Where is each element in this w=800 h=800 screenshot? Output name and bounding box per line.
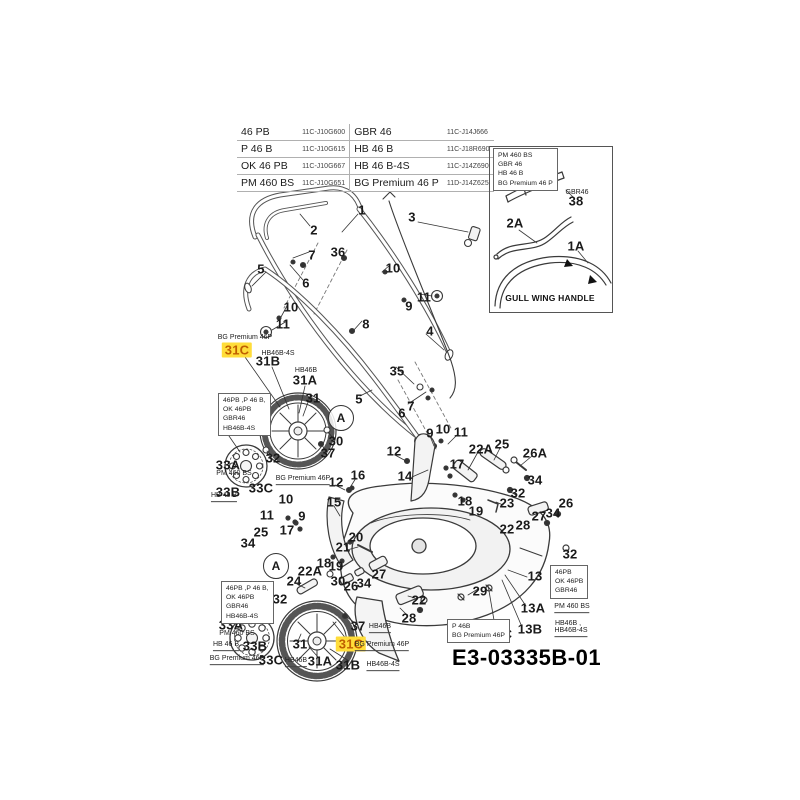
part-callout: 37 [321, 447, 336, 460]
model-applicability-note: HB46B-4S [554, 627, 587, 637]
part-callout: 13 [528, 570, 543, 583]
part-callout: 13A [521, 602, 545, 615]
view-ref-callout: A [328, 405, 354, 431]
part-callout: 1A [567, 240, 584, 253]
part-callout: 22A [469, 443, 493, 456]
part-callout: 32 [266, 452, 281, 465]
part-callout: 12 [329, 476, 344, 489]
part-callout: 7 [308, 249, 315, 262]
model-applicability-note: PM 460 BS [219, 630, 254, 638]
part-callout: 28 [516, 519, 531, 532]
part-callout: 11 [276, 318, 290, 331]
part-callout: 33B [243, 640, 267, 653]
part-callout-highlighted: 31C [222, 343, 252, 358]
part-callout: 35 [390, 365, 405, 378]
part-callout: 9 [298, 510, 305, 523]
part-callout: 4 [426, 325, 433, 338]
part-callout: 27 [532, 510, 547, 523]
part-callout: 22 [412, 594, 427, 607]
part-callout: 19 [329, 560, 344, 573]
model-applicability-note: BG Premium 46P [210, 655, 264, 665]
part-callout: 6 [302, 277, 309, 290]
part-callout: 21 [336, 541, 351, 554]
callout-layer: 123367561011981011435765910111222A2526A1… [0, 0, 800, 800]
part-callout: 11 [454, 426, 468, 439]
model-applicability-box: P 46BBG Premium 46P [447, 619, 510, 643]
model-applicability-box: 46PB ,P 46 B,OK 46PBGBR46HB46B-4S [218, 393, 271, 436]
part-callout: 17 [280, 524, 295, 537]
part-callout: 10 [279, 493, 294, 506]
part-callout: 27 [372, 568, 387, 581]
part-callout: 2 [310, 224, 317, 237]
part-callout: 11 [260, 509, 274, 522]
part-callout: 25 [495, 438, 510, 451]
part-callout: 34 [357, 577, 372, 590]
part-callout: 16 [351, 469, 366, 482]
part-callout: 19 [469, 505, 484, 518]
part-callout: 32 [563, 548, 578, 561]
sheet-code: E3-03335B-01 [452, 645, 601, 671]
part-callout: 31B [336, 659, 360, 672]
part-callout: 29 [473, 585, 488, 598]
part-callout: 1 [358, 204, 365, 217]
model-applicability-note: PM 460 BS [554, 603, 589, 613]
part-callout: 24 [287, 575, 302, 588]
parts-diagram-page: 46 PB11C-J10G600GBR 4611C-J14J666P 46 B1… [0, 0, 800, 800]
model-applicability-note: HB 46 B [211, 492, 237, 502]
part-callout: 23 [500, 497, 515, 510]
model-applicability-note: HB46B [285, 657, 307, 667]
part-callout: 26 [559, 497, 574, 510]
part-callout: 34 [546, 507, 561, 520]
part-callout: 9 [405, 300, 412, 313]
part-callout: 15 [327, 496, 342, 509]
part-callout: 34 [528, 474, 543, 487]
part-callout: 36 [331, 246, 346, 259]
part-callout: 25 [254, 526, 269, 539]
part-callout: 10 [386, 262, 401, 275]
part-callout: 33C [249, 482, 273, 495]
model-applicability-box: 46PBOK 46PBGBR46 [550, 565, 588, 599]
part-callout: 34 [241, 537, 256, 550]
part-callout: 22 [500, 523, 515, 536]
part-callout: 17 [450, 458, 465, 471]
model-applicability-note: PM 460 BS [216, 470, 251, 478]
model-applicability-box: 46PB ,P 46 B,OK 46PBGBR46HB46B-4S [221, 581, 274, 624]
part-callout: 26A [523, 447, 547, 460]
model-applicability-box: PM 460 BSGBR 46HB 46 BBG Premium 46 P [493, 148, 558, 191]
part-callout: 9 [426, 427, 433, 440]
part-callout: 3 [408, 211, 415, 224]
part-callout: 32 [273, 593, 288, 606]
model-applicability-note: BG Premium 46P [276, 475, 330, 485]
model-applicability-note: BG Premium 46P [355, 641, 409, 651]
part-callout: 37 [351, 620, 366, 633]
part-callout: 7 [407, 400, 414, 413]
part-callout: 13B [518, 623, 542, 636]
part-callout: 28 [402, 612, 417, 625]
part-callout: 31A [293, 374, 317, 387]
part-callout: 10 [436, 423, 451, 436]
part-callout: 5 [257, 263, 264, 276]
part-callout: 11 [417, 291, 431, 304]
part-callout: 5 [355, 393, 362, 406]
model-applicability-note: BG Premium 46P [218, 334, 272, 342]
part-callout: 10 [284, 301, 299, 314]
part-callout: 31 [293, 638, 308, 651]
model-applicability-note: GBR46 [566, 189, 589, 197]
model-applicability-note: HB46B [295, 367, 317, 375]
view-ref-callout: A [263, 553, 289, 579]
part-callout: 31 [306, 392, 321, 405]
part-callout: 2A [506, 217, 523, 230]
part-callout: 6 [398, 407, 405, 420]
model-applicability-note: HB46B-4S [261, 350, 294, 358]
part-callout: 31A [308, 655, 332, 668]
part-callout: 14 [398, 470, 413, 483]
model-applicability-note: HB46B [369, 623, 391, 633]
part-callout: 20 [349, 531, 364, 544]
model-applicability-note: HB 46 B [213, 641, 239, 651]
part-callout: 12 [387, 445, 402, 458]
part-callout: 8 [362, 318, 369, 331]
model-applicability-note: HB46B-4S [366, 661, 399, 671]
